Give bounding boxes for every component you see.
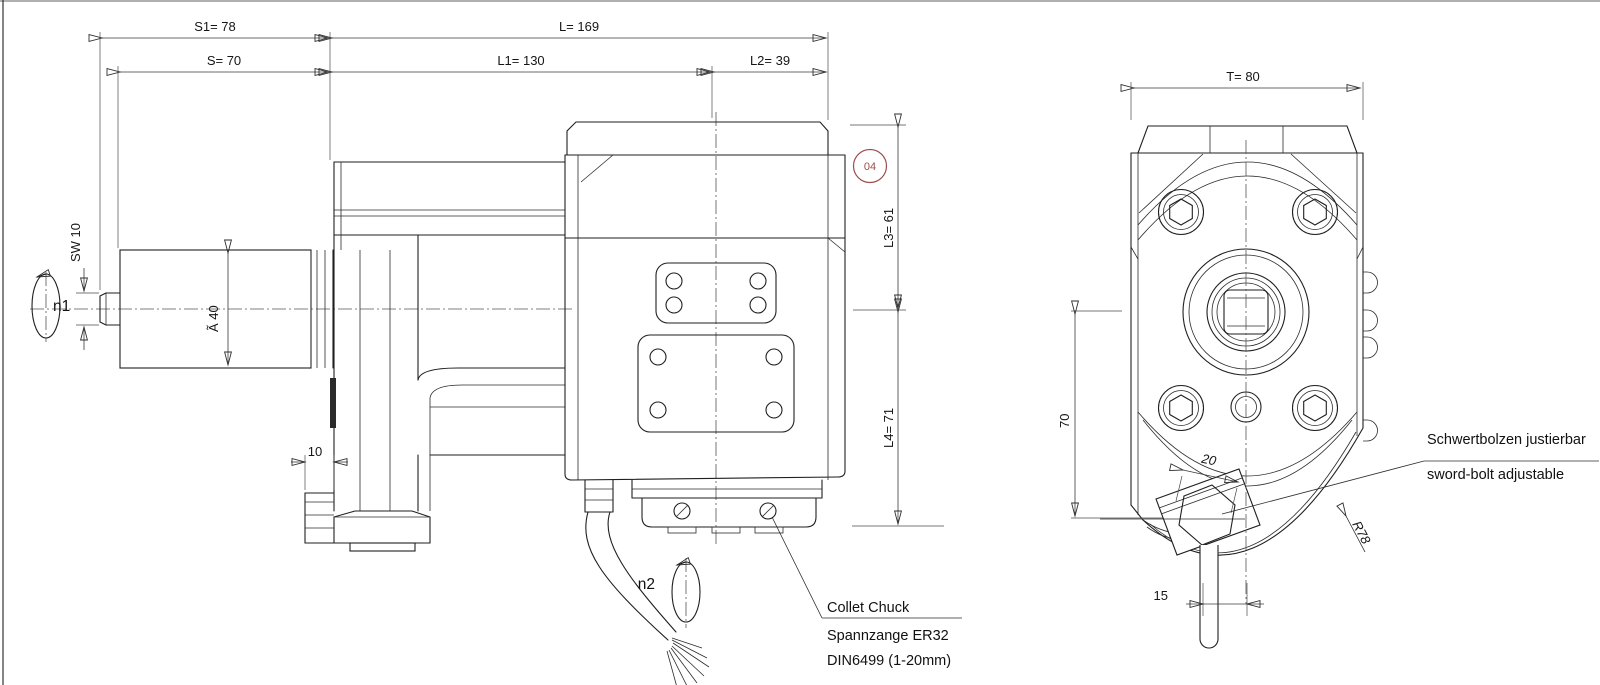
label-schwertbolzen: Schwertbolzen justierbar <box>1427 432 1586 448</box>
dim-l: L= 169 <box>559 19 599 34</box>
dim-sw10: SW 10 <box>68 223 83 262</box>
balloon-04-text: 04 <box>864 161 876 173</box>
dim-70: 70 <box>1057 414 1072 428</box>
dim-20: 20 <box>1199 451 1218 469</box>
dim-t: T= 80 <box>1226 69 1260 84</box>
dim-s1: S1= 78 <box>194 19 236 34</box>
front-body <box>1131 126 1378 555</box>
spindle-housing <box>565 122 845 533</box>
dim-s: S= 70 <box>207 53 241 68</box>
label-spannzange: Spannzange ER32 <box>827 628 949 644</box>
dim-10-group: 10 <box>291 444 348 490</box>
side-view: S1= 78 L= 169 S= 70 L1= 130 L2= 39 <box>30 19 962 685</box>
dim-l4: L4= 71 <box>881 408 896 448</box>
hex-bolt <box>1293 190 1338 235</box>
sheet-border <box>0 0 1600 685</box>
hex-bolt <box>1159 386 1204 431</box>
label-sword-bolt: sword-bolt adjustable <box>1427 467 1564 483</box>
dim-l1: L1= 130 <box>497 53 544 68</box>
drawing-canvas: S1= 78 L= 169 S= 70 L1= 130 L2= 39 <box>0 0 1600 685</box>
n1-rotation-symbol: n1 <box>32 274 70 338</box>
n2-rotation-symbol: n2 <box>638 562 700 622</box>
collet-chuck-callout: Collet Chuck Spannzange ER32 DIN6499 (1-… <box>772 517 962 669</box>
dim-sw10-group: SW 10 <box>68 223 99 350</box>
r78-callout: R78 <box>1346 516 1374 552</box>
sword-bolt-callout: Schwertbolzen justierbar sword-bolt adju… <box>1222 432 1599 514</box>
label-collet-chuck: Collet Chuck <box>827 600 910 616</box>
dim-r78: R78 <box>1349 518 1374 547</box>
hex-bolts <box>1159 190 1338 431</box>
dim-t-group: T= 80 <box>1131 69 1363 120</box>
sword-bolt <box>1100 469 1260 648</box>
dim-l3: L3= 61 <box>881 208 896 248</box>
balloon-04: 04 <box>854 150 887 183</box>
wire-fray <box>667 638 713 685</box>
label-din6499: DIN6499 (1-20mm) <box>827 653 951 669</box>
dim-dia40: Ã 40 <box>206 305 221 332</box>
label-n2: n2 <box>638 576 655 593</box>
technical-drawing-sheet: S1= 78 L= 169 S= 70 L1= 130 L2= 39 <box>0 0 1600 685</box>
dim-l2: L2= 39 <box>750 53 790 68</box>
dim-10: 10 <box>308 444 322 459</box>
hex-bolt <box>1293 386 1338 431</box>
front-view: T= 80 <box>1057 69 1599 648</box>
label-n1: n1 <box>53 298 70 315</box>
dim-15: 15 <box>1154 588 1168 603</box>
angle-bracket <box>305 162 565 551</box>
l3-l4-dimensions: L3= 61 L4= 71 <box>850 125 944 526</box>
